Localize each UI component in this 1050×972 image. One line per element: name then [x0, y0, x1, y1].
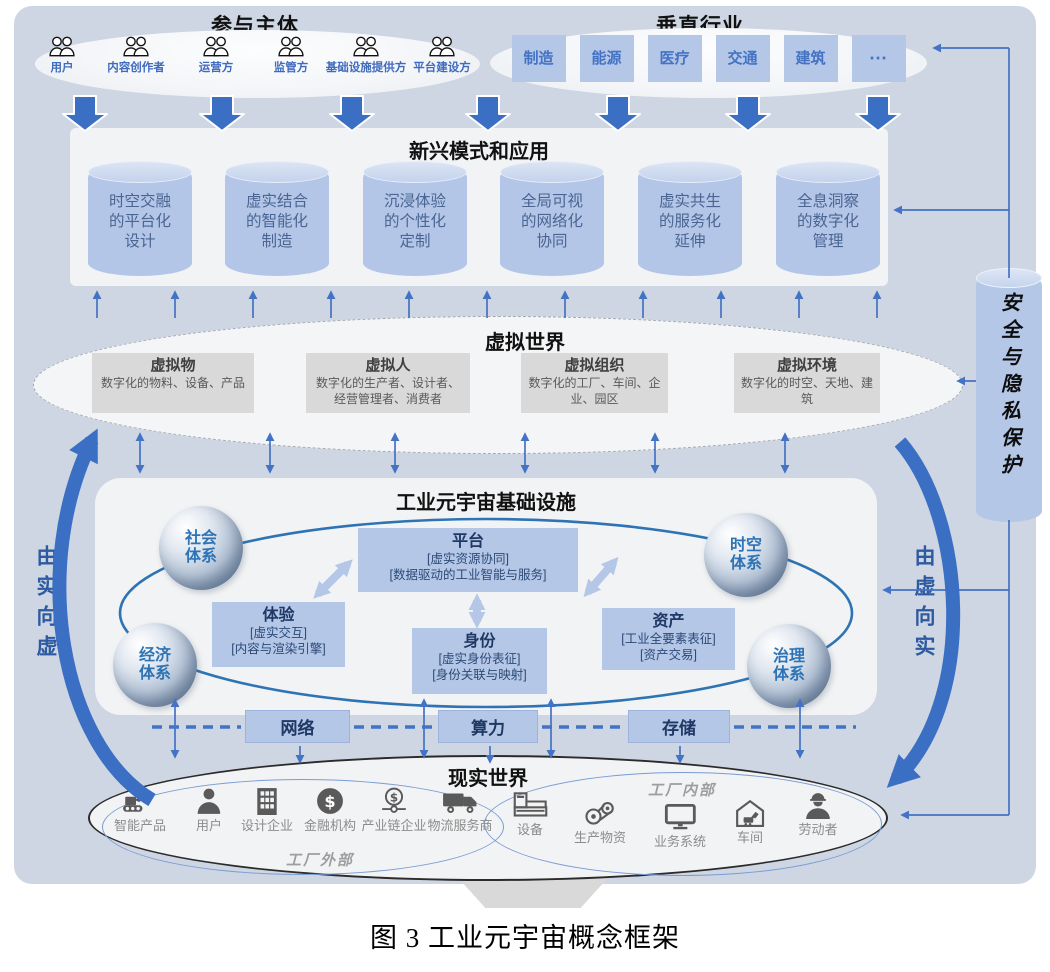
- application-cylinder: 虚实结合的智能化制造: [225, 172, 329, 276]
- real-world-item-label: 业务系统: [654, 834, 706, 849]
- application-cylinder: 全息洞察的数字化管理: [776, 172, 880, 276]
- sphere-label: 时空体系: [728, 537, 764, 574]
- virtual-box-desc: 数字化的时空、天地、建筑: [734, 375, 880, 407]
- application-cylinder: 全局可视的网络化协同: [500, 172, 604, 276]
- real-world-item-label: 用户: [196, 818, 222, 833]
- virtual-box-title: 虚拟物: [92, 357, 254, 375]
- applications-title: 新兴模式和应用: [70, 135, 888, 164]
- computing-box: 算力: [438, 710, 538, 743]
- identity-title: 身份: [412, 632, 547, 651]
- social-system-sphere: 社会体系: [159, 506, 243, 590]
- participant-item: 平台建设方: [387, 36, 497, 76]
- application-label: 虚实共生的服务化延伸: [656, 192, 724, 252]
- workshop-icon: [735, 799, 765, 827]
- industries-group: 制造 能源 医疗 交通 建筑 ⋯: [490, 28, 927, 98]
- people-icon: [47, 36, 77, 58]
- virtual-environment-box: 虚拟环境 数字化的时空、天地、建筑: [734, 353, 880, 413]
- worker-icon: [804, 791, 832, 819]
- participant-label: 运营方: [199, 62, 234, 74]
- application-label: 沉浸体验的个性化定制: [381, 192, 449, 252]
- platform-line: [虚实资源协同]: [358, 551, 578, 567]
- virtual-object-box: 虚拟物 数字化的物料、设备、产品: [92, 353, 254, 413]
- people-icon: [121, 36, 151, 58]
- people-icon: [276, 36, 306, 58]
- experience-line: [虚实交互]: [212, 625, 345, 641]
- security-privacy-cylinder: 安全与隐私保护: [976, 278, 1042, 522]
- application-cylinder: 虚实共生的服务化延伸: [638, 172, 742, 276]
- identity-box: 身份 [虚实身份表征] [身份关联与映射]: [412, 628, 547, 694]
- materials-icon: [583, 799, 618, 827]
- user-icon: [196, 787, 222, 815]
- industry-box: 交通: [716, 35, 770, 82]
- platform-line: [数据驱动的工业智能与服务]: [358, 567, 578, 583]
- virtual-box-desc: 数字化的工厂、车间、企业、园区: [521, 375, 668, 407]
- application-label: 虚实结合的智能化制造: [243, 192, 311, 252]
- factory-outside-label: 工厂外部: [286, 849, 354, 870]
- infrastructure-panel: 工业元宇宙基础设施 社会体系 经济体系 时空体系 治理体系 平台 [虚实资源协同…: [95, 478, 877, 715]
- real-world-item-label: 设备: [517, 822, 543, 837]
- people-icon: [351, 36, 381, 58]
- governance-system-sphere: 治理体系: [747, 624, 831, 708]
- real-world-item: 劳动者: [772, 791, 864, 839]
- platform-title: 平台: [358, 532, 578, 551]
- industry-box: 建筑: [784, 35, 838, 82]
- economic-system-sphere: 经济体系: [113, 623, 197, 707]
- excavator-icon: [122, 787, 159, 815]
- experience-box: 体验 [虚实交互] [内容与渲染引擎]: [212, 602, 345, 667]
- sphere-label: 经济体系: [137, 647, 173, 684]
- virtual-world-title: 虚拟世界: [0, 326, 1050, 355]
- industry-box: 制造: [512, 35, 566, 82]
- equipment-icon: [513, 791, 548, 819]
- industry-row: 制造 能源 医疗 交通 建筑 ⋯: [490, 35, 927, 82]
- virtual-box-title: 虚拟环境: [734, 357, 880, 375]
- industry-box: 能源: [580, 35, 634, 82]
- sphere-label: 社会体系: [183, 530, 219, 567]
- storage-box: 存储: [628, 710, 730, 743]
- virtual-box-title: 虚拟人: [306, 357, 470, 375]
- people-icon: [427, 36, 457, 58]
- industry-box-more: ⋯: [852, 35, 906, 82]
- real-world-item-label: 车间: [737, 830, 763, 845]
- experience-title: 体验: [212, 606, 345, 625]
- monitor-icon: [664, 803, 697, 831]
- applications-panel: 新兴模式和应用 时空交融的平台化设计 虚实结合的智能化制造 沉浸体验的个性化定制…: [70, 128, 888, 286]
- pedestal-shape: [448, 878, 618, 908]
- svg-text:$: $: [390, 791, 398, 805]
- application-label: 全局可视的网络化协同: [518, 192, 586, 252]
- supply-chain-icon: $: [380, 787, 408, 815]
- participants-group: 用户 内容创作者 运营方 监管方 基础设施提供方 平台建设方: [35, 30, 480, 98]
- virtual-box-title: 虚拟组织: [521, 357, 668, 375]
- truck-icon: [442, 787, 479, 815]
- network-box: 网络: [245, 710, 350, 743]
- dollar-coin-icon: $: [316, 787, 344, 815]
- virtual-box-desc: 数字化的物料、设备、产品: [92, 375, 254, 392]
- virtual-organization-box: 虚拟组织 数字化的工厂、车间、企业、园区: [521, 353, 668, 413]
- experience-line: [内容与渲染引擎]: [212, 641, 345, 657]
- participant-label: 监管方: [274, 62, 309, 74]
- participant-label: 用户: [51, 62, 74, 74]
- real-world-item-label: 智能产品: [114, 818, 166, 833]
- asset-title: 资产: [602, 612, 735, 631]
- asset-line: [资产交易]: [602, 647, 735, 663]
- real-world-item: 生产物资: [554, 799, 646, 847]
- identity-line: [虚实身份表征]: [412, 651, 547, 667]
- figure-canvas: 参与主体 用户 内容创作者 运营方 监管方 基础设施提供方 平台建设方 垂直行业: [0, 0, 1050, 972]
- spacetime-system-sphere: 时空体系: [704, 513, 788, 597]
- factory-inside-label: 工厂内部: [648, 779, 716, 800]
- industry-box: 医疗: [648, 35, 702, 82]
- application-cylinder: 时空交融的平台化设计: [88, 172, 192, 276]
- asset-box: 资产 [工业全要素表征] [资产交易]: [602, 608, 735, 670]
- application-cylinder: 沉浸体验的个性化定制: [363, 172, 467, 276]
- participant-label: 平台建设方: [413, 62, 471, 74]
- real-world-panel: 现实世界 智能产品 用户 设计企业 $ 金融机构 $ 产业链企业 物流服务商 工…: [88, 755, 888, 881]
- platform-box: 平台 [虚实资源协同] [数据驱动的工业智能与服务]: [358, 528, 578, 592]
- security-privacy-label: 安全与隐私保护: [995, 292, 1024, 481]
- people-icon: [201, 36, 231, 58]
- svg-text:$: $: [324, 792, 335, 811]
- real-world-item-label: 劳动者: [798, 822, 837, 837]
- real-world-item-label: 物流服务商: [427, 818, 492, 833]
- virtual-box-desc: 数字化的生产者、设计者、经营管理者、消费者: [306, 375, 470, 407]
- application-label: 时空交融的平台化设计: [106, 192, 174, 252]
- virtual-human-box: 虚拟人 数字化的生产者、设计者、经营管理者、消费者: [306, 353, 470, 413]
- real-world-item-label: 生产物资: [574, 830, 626, 845]
- identity-line: [身份关联与映射]: [412, 667, 547, 683]
- application-label: 全息洞察的数字化管理: [794, 192, 862, 252]
- sphere-label: 治理体系: [771, 648, 807, 685]
- participant-label: 内容创作者: [107, 62, 165, 74]
- figure-caption: 图 3 工业元宇宙概念框架: [0, 916, 1050, 955]
- real-to-virtual-label: 由实向虚: [30, 545, 60, 665]
- asset-line: [工业全要素表征]: [602, 631, 735, 647]
- building-icon: [253, 787, 281, 815]
- virtual-to-real-label: 由虚向实: [908, 545, 938, 665]
